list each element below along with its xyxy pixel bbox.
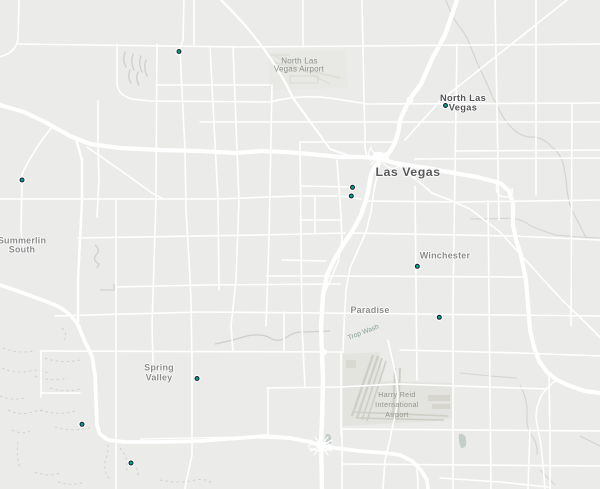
svg-text:Vegas Airport: Vegas Airport bbox=[274, 65, 325, 74]
svg-text:Harry Reid: Harry Reid bbox=[378, 392, 415, 399]
svg-text:Winchester: Winchester bbox=[420, 251, 471, 261]
svg-text:Valley: Valley bbox=[146, 373, 173, 383]
svg-text:Las Vegas: Las Vegas bbox=[375, 165, 440, 179]
svg-text:Airport: Airport bbox=[385, 412, 408, 419]
svg-text:Vegas: Vegas bbox=[449, 103, 477, 113]
svg-text:Spring: Spring bbox=[144, 363, 174, 373]
svg-text:North Las: North Las bbox=[440, 93, 486, 103]
svg-text:International: International bbox=[375, 402, 419, 409]
svg-text:South: South bbox=[9, 245, 36, 255]
svg-text:Paradise: Paradise bbox=[350, 305, 389, 315]
